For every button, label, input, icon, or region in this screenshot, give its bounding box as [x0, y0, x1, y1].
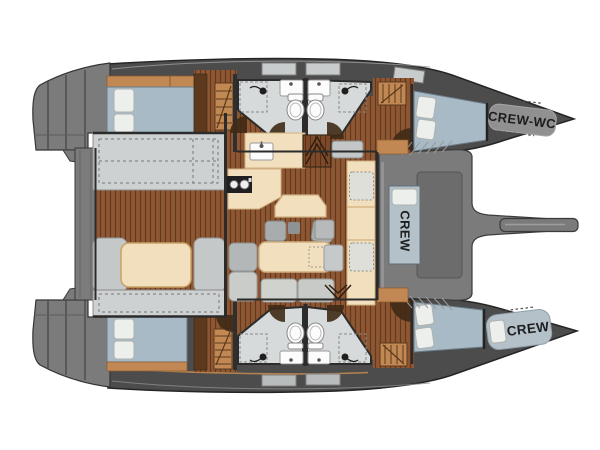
foredeck: CREW [379, 150, 578, 301]
lounge-seat [229, 243, 257, 271]
sink [308, 351, 330, 364]
catamaran-floorplan: CREW [0, 0, 600, 450]
settee-cushion [350, 243, 374, 271]
aft-crossbeam-platform [75, 148, 95, 300]
side-stool [288, 222, 300, 234]
deck-hatch [306, 374, 340, 385]
pillow [114, 341, 134, 359]
crew-mid-label: CREW [398, 210, 413, 252]
chart-table [332, 141, 363, 158]
pillow [416, 96, 437, 119]
pillow [416, 119, 436, 140]
foredeck-locker [417, 172, 462, 278]
pillow [415, 327, 435, 349]
pillow [392, 189, 417, 205]
faucet [317, 358, 321, 362]
pillow [114, 89, 134, 112]
ottoman [324, 245, 343, 271]
pillow [415, 304, 435, 326]
companionway-steps [214, 329, 232, 369]
ottoman [315, 220, 334, 239]
headboard [107, 76, 194, 88]
footboard [107, 362, 187, 371]
burner [240, 180, 249, 189]
pillow [489, 320, 507, 344]
floorplan-page: CREW [0, 0, 600, 450]
settee-cushion [350, 172, 374, 200]
toilet [287, 323, 304, 349]
toilet [307, 323, 324, 349]
faucet [289, 82, 293, 86]
burner [230, 181, 238, 189]
dining-chair [265, 221, 286, 241]
dining-bench [275, 195, 326, 217]
deck-hatch [262, 63, 296, 75]
stove-control [249, 178, 252, 182]
lounge-table [121, 243, 191, 287]
pillow [114, 319, 134, 339]
lounge-seat [229, 272, 257, 301]
deck-hatch [306, 63, 340, 75]
bulkhead [233, 300, 237, 370]
deck-trim [377, 140, 408, 154]
toilet [307, 94, 324, 120]
toilet [287, 94, 304, 120]
faucet [317, 82, 321, 86]
faucet [289, 358, 293, 362]
pillow [114, 114, 134, 132]
companionway-steps [380, 343, 407, 366]
sink [280, 351, 303, 364]
companionway-steps [378, 82, 406, 105]
bulkhead [233, 74, 237, 152]
deck-trim [377, 288, 408, 302]
settee-arm [194, 238, 225, 292]
deck-hatch [262, 375, 296, 386]
